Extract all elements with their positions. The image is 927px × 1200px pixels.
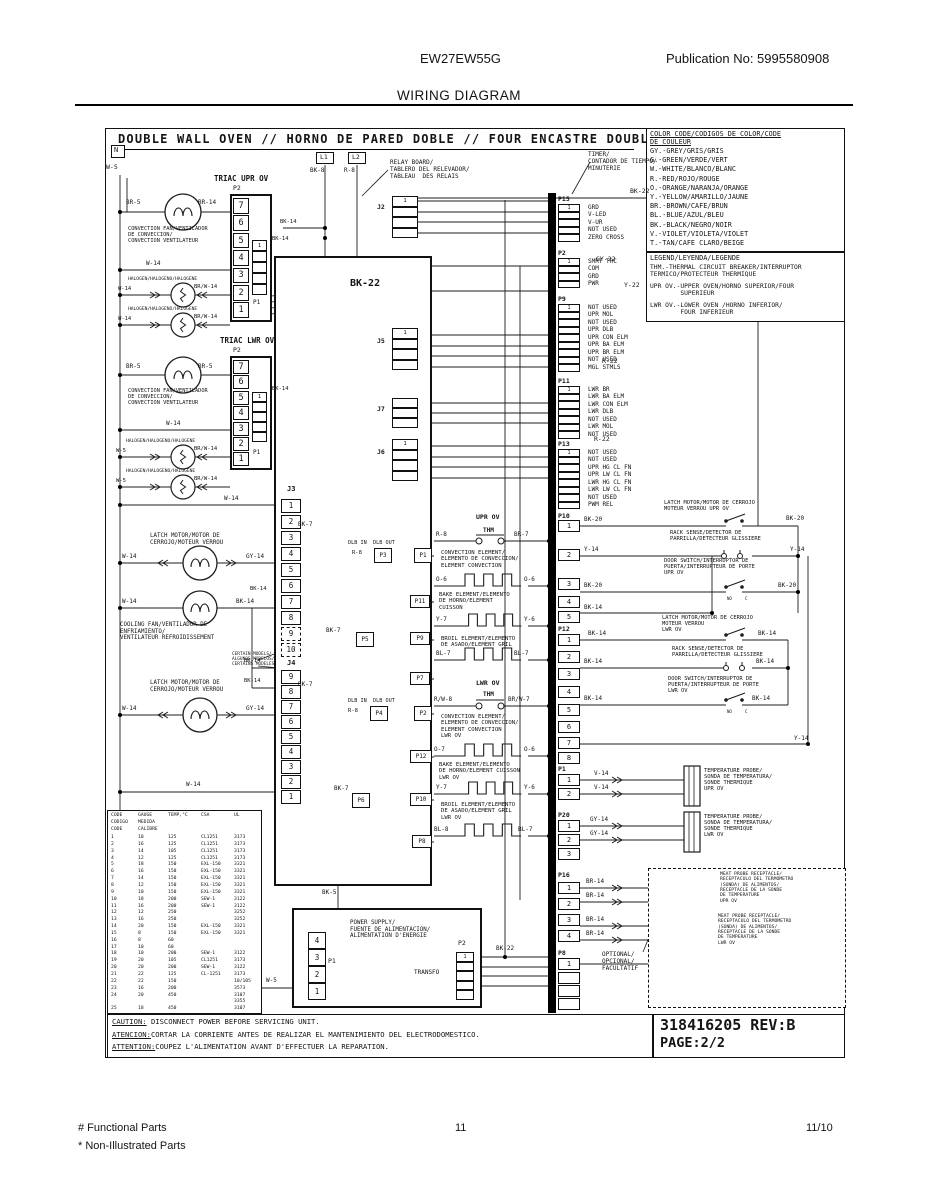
wire-gauge-cell: 105 <box>168 958 201 963</box>
wire-gauge-cell: 22 <box>138 972 168 977</box>
connector-label: P2 <box>233 347 241 354</box>
color-code-entry: GY.-GREY/GRIS/GRIS <box>650 148 724 156</box>
wire-label: BL-7 <box>514 651 528 658</box>
element-label: BROIL ELEMENT/ELEMENTO DE ASADO/ELEMENT … <box>441 636 515 649</box>
wire-label: BK-14 <box>756 659 774 666</box>
wire-label: Y-7 <box>436 785 447 792</box>
component-label: DOOR SWITCH/INTERRUPTOR DE PUERTA/INTERR… <box>668 676 759 694</box>
wire-gauge-cell: 250 <box>168 917 201 922</box>
timer-pin: 3 <box>558 668 580 680</box>
wire-gauge-cell: EXL-150 <box>201 924 234 929</box>
power-p2-pin <box>456 971 474 981</box>
color-code-entry: T.-TAN/CAFE CLARO/BEIGE <box>650 240 744 248</box>
relay-port-p3: P3 <box>374 548 392 563</box>
wire-gauge-cell: 450 <box>168 1006 201 1011</box>
wire-gauge-cell <box>201 1006 234 1011</box>
timer-connector-label: P9 <box>558 296 566 303</box>
wire-gauge-cell <box>201 917 234 922</box>
timer-pin: 2 <box>558 898 580 910</box>
j2-pin: 1 <box>392 196 418 207</box>
wire-gauge-row: 1920105CL12513173 <box>111 958 258 963</box>
power-p2-pin <box>456 981 474 991</box>
section-label: LWR OV <box>476 680 499 687</box>
timer-pin: 6 <box>558 721 580 733</box>
wire-label: BR/W-14 <box>194 314 217 320</box>
wire-gauge-cell: CL1251 <box>201 849 234 854</box>
wire-gauge-cell: 150 <box>168 862 201 867</box>
wire-gauge-cell: 5 <box>111 862 138 867</box>
timer-pin <box>558 312 580 320</box>
caution-line: ATTENTION:COUPEZ L'ALIMENTATION AVANT D'… <box>112 1043 389 1051</box>
triac-lower-inner-pin <box>252 432 267 442</box>
triac-lower-pin: 7 <box>233 360 249 374</box>
timer-pin: 1 <box>558 449 580 457</box>
j3-pin: 9 <box>281 627 301 641</box>
timer-connector-label: P20 <box>558 812 570 819</box>
page-indicator: PAGE:2/2 <box>660 1036 725 1051</box>
triac-upper-pin: 6 <box>233 215 249 231</box>
wire-gauge-cell: 12 <box>111 910 138 915</box>
timer-pin: 2 <box>558 549 580 561</box>
wire-gauge-cell: 24 <box>111 993 138 998</box>
timer-pin <box>558 464 580 472</box>
connector-label: J5 <box>377 338 385 345</box>
wire-label: W-14 <box>166 421 180 428</box>
wire-gauge-row: 216125CL12513173 <box>111 842 258 847</box>
wire-gauge-cell: 3252 <box>234 917 258 922</box>
footer-non-illustrated-parts: * Non-Illustrated Parts <box>78 1140 186 1153</box>
triac-lower-inner-pin <box>252 412 267 422</box>
wire-gauge-cell: 3573 <box>234 986 258 991</box>
timer-pin <box>558 364 580 372</box>
wire-gauge-cell: MEDIDA <box>138 820 168 825</box>
wire-gauge-cell: 3321 <box>234 931 258 936</box>
wire-gauge-cell: UL <box>234 813 258 818</box>
timer-pin: 7 <box>558 737 580 749</box>
wire-gauge-cell: 10 <box>111 897 138 902</box>
power-p2-pin: 1 <box>456 952 474 962</box>
wire-label: O-6 <box>436 577 447 584</box>
wire-gauge-cell: 150 <box>168 924 201 929</box>
wire-label: BK-14 <box>280 219 297 225</box>
wire-gauge-cell: 23 <box>111 986 138 991</box>
j4-pin: 5 <box>281 730 301 744</box>
wire-label: BK-14 <box>584 659 602 666</box>
wire-label: W-14 <box>146 261 160 268</box>
legend-entry: UPR OV.-UPPER OVEN/HORNO SUPERIOR/FOUR S… <box>650 283 794 297</box>
timer-pin: 1 <box>558 958 580 970</box>
footer-page-number: 11 <box>455 1122 466 1135</box>
wire-gauge-cell: 150 <box>168 883 201 888</box>
wire-gauge-cell: 10 <box>138 890 168 895</box>
wire-label: BK-14 <box>236 599 254 606</box>
timer-pin: 1 <box>558 204 580 212</box>
wire-label: W-5 <box>116 478 126 484</box>
wire-gauge-cell <box>234 945 258 950</box>
wire-label: GY-14 <box>246 706 264 713</box>
timer-pin <box>558 494 580 502</box>
wire-gauge-cell <box>201 910 234 915</box>
component-label: CONVECTION FAN/VENTILADOR DE CONVECCION/… <box>128 388 208 406</box>
wire-gauge-cell: 3252 <box>234 910 258 915</box>
wire-label: Y-22 <box>624 282 640 289</box>
wire-gauge-cell: 21 <box>111 972 138 977</box>
timer-pin <box>558 424 580 432</box>
wire-label: GY-14 <box>246 554 264 561</box>
triac-lower-inner-pin: 1 <box>252 392 267 402</box>
timer-connector-label: P8 <box>558 950 566 957</box>
color-code-entry: R.-RED/ROJO/ROUGE <box>650 176 720 184</box>
j4-pin: 7 <box>281 700 301 714</box>
wire-gauge-row: 158150EXL-1503321 <box>111 931 258 936</box>
wire-gauge-cell: GAUGE <box>138 813 168 818</box>
power-p1-pin: 3 <box>308 949 326 966</box>
connector-label: P1 <box>253 300 260 307</box>
wire-gauge-cell: 10 <box>138 945 168 950</box>
wire-gauge-cell: 8 <box>138 938 168 943</box>
wire-gauge-cell: 10/105 <box>234 979 258 984</box>
j3-pin: 3 <box>281 531 301 545</box>
wire-label: GY-14 <box>590 831 608 838</box>
triac-lower-pin: 1 <box>233 452 249 466</box>
power-p1-pin: 4 <box>308 932 326 949</box>
wire-label: V-14 <box>594 785 608 792</box>
timer-pin <box>558 266 580 274</box>
triac-lower-pin: 4 <box>233 406 249 420</box>
wire-label: BK-14 <box>244 658 261 664</box>
relay-port-p1: P1 <box>414 548 432 563</box>
j3-pin: 8 <box>281 611 301 625</box>
wire-gauge-cell: 125 <box>168 856 201 861</box>
page-title: WIRING DIAGRAM <box>397 88 521 103</box>
j5-pin <box>392 339 418 350</box>
timer-pin <box>558 985 580 997</box>
wire-label: O-7 <box>434 747 445 754</box>
timer-signal: NOT USED <box>588 227 617 234</box>
timer-pin: 1 <box>558 634 580 646</box>
wire-gauge-cell <box>111 999 138 1004</box>
wire-gauge-cell: 18 <box>138 1006 168 1011</box>
wire-gauge-cell: CODE <box>111 827 138 832</box>
wiring-diagram-page: EW27EW55G Publication No: 5995580908 WIR… <box>0 0 927 1200</box>
wire-gauge-row: 222215010/105 <box>111 979 258 984</box>
triac-lower-pin: 3 <box>233 422 249 436</box>
j2-pin <box>392 228 418 239</box>
wire-gauge-cell: 16 <box>138 917 168 922</box>
wire-label: BK-14 <box>758 631 776 638</box>
wire-gauge-cell: 200 <box>168 951 201 956</box>
wire-gauge-cell: 22 <box>138 979 168 984</box>
wire-gauge-cell: SEW-1 <box>201 951 234 956</box>
wire-label: BK-20 <box>584 583 602 590</box>
timer-signal: UPR DLB <box>588 327 613 334</box>
wire-gauge-cell <box>201 820 234 825</box>
j3-pin: 7 <box>281 595 301 609</box>
timer-pin: 1 <box>558 304 580 312</box>
wire-gauge-cell: 16 <box>111 938 138 943</box>
triac-lower-inner-pin <box>252 402 267 412</box>
j5-pin <box>392 349 418 360</box>
wire-gauge-cell: 4 <box>111 856 138 861</box>
wire-gauge-cell <box>201 993 234 998</box>
wire-gauge-cell: EXL-150 <box>201 890 234 895</box>
wire-label: BK-14 <box>272 386 289 392</box>
wire-gauge-cell: 125 <box>168 972 201 977</box>
wire-label: BR-7 <box>514 532 528 539</box>
thm-label: THM <box>483 528 494 535</box>
component-label: RACK SENSE/DETECTOR DE PARRILLA/DETECTEU… <box>672 646 763 658</box>
wire-gauge-cell: 18 <box>138 862 168 867</box>
timer-pin: 3 <box>558 848 580 860</box>
wire-gauge-cell: 150 <box>168 931 201 936</box>
relay-port-p4: P4 <box>370 706 388 721</box>
j4-pin: 3 <box>281 760 301 774</box>
color-code-entry: G.-GREEN/VERDE/VERT <box>650 157 728 165</box>
wire-gauge-cell: 3122 <box>234 951 258 956</box>
timer-label: TIMER/ CONTADOR DE TIEMPO/ MINUTERIE <box>588 152 657 172</box>
wire-label: BK-22 <box>630 188 650 195</box>
wire-gauge-cell: 10 <box>138 951 168 956</box>
timer-connector-label: P12 <box>558 626 570 633</box>
timer-connector-label: P15 <box>558 196 570 203</box>
wire-label: BK-14 <box>584 605 602 612</box>
j3-pin: 4 <box>281 547 301 561</box>
j7-pin <box>392 408 418 418</box>
color-code-entry: W.-WHITE/BLANCO/BLANC <box>650 166 736 174</box>
component-label: HALOGEN/HALOGENO/HALOGENE <box>128 277 197 282</box>
wire-label: Y-6 <box>524 785 535 792</box>
triac-upper-pin: 1 <box>233 302 249 318</box>
component-label: TEMPERATURE PROBE/ SONDA DE TEMPERATURA/… <box>704 814 772 839</box>
wire-label: W-5 <box>106 164 118 171</box>
timer-pin: 1 <box>558 258 580 266</box>
wire-gauge-row: 910150EXL-1503321 <box>111 890 258 895</box>
footer-date: 11/10 <box>806 1122 833 1135</box>
wire-gauge-cell: 20 <box>138 924 168 929</box>
wire-gauge-cell: 15 <box>111 931 138 936</box>
relay-port-p2: P2 <box>414 706 432 721</box>
timer-pin <box>558 319 580 327</box>
wire-gauge-cell: 14 <box>138 876 168 881</box>
wire-label: BR-5 <box>126 200 140 207</box>
wire-gauge-cell: EXL-150 <box>201 862 234 867</box>
wire-gauge-cell: 3321 <box>234 890 258 895</box>
wire-gauge-row: 3355 <box>111 999 258 1004</box>
wire-gauge-row: 1420150EXL-1503321 <box>111 924 258 929</box>
wire-gauge-cell: 11 <box>111 904 138 909</box>
part-number: 318416205 REV:B <box>660 1017 795 1034</box>
timer-pin <box>558 281 580 289</box>
wire-label: Y-6 <box>524 617 535 624</box>
wire-gauge-cell <box>234 827 258 832</box>
caution-keyword: CAUTION: <box>112 1017 147 1026</box>
wire-gauge-cell: 3173 <box>234 856 258 861</box>
wire-gauge-cell: 200 <box>168 904 201 909</box>
wire-gauge-row: 412125CL12513173 <box>111 856 258 861</box>
wire-gauge-cell: CL1251 <box>201 856 234 861</box>
wire-gauge-cell: 3173 <box>234 835 258 840</box>
wire-gauge-cell: 6 <box>111 869 138 874</box>
wire-gauge-cell: 60 <box>168 938 201 943</box>
j6-pin <box>392 460 418 471</box>
color-code-title: COLOR CODE/CODIGOS DE COLOR/CODE DE COUL… <box>650 131 781 146</box>
caution-text: COUPEZ L'ALIMENTATION AVANT D'EFFECTUER … <box>155 1042 389 1051</box>
wire-label: BR-14 <box>586 931 604 938</box>
triac-lower-pin: 6 <box>233 375 249 389</box>
connector-label: J2 <box>377 204 385 211</box>
timer-pin: 8 <box>558 752 580 764</box>
wire-label: W-14 <box>118 316 131 322</box>
wire-label: BK-14 <box>244 678 261 684</box>
wire-gauge-cell: 22 <box>111 979 138 984</box>
wire-gauge-cell: 3321 <box>234 883 258 888</box>
wire-gauge-cell: 13 <box>111 917 138 922</box>
wire-gauge-row: 171060 <box>111 945 258 950</box>
connector-label: J3 <box>287 486 295 494</box>
j7-pin <box>392 398 418 408</box>
wire-gauge-cell: 18 <box>138 835 168 840</box>
timer-pin: 1 <box>558 386 580 394</box>
wire-gauge-cell: 3 <box>111 849 138 854</box>
wire-label: Y-14 <box>794 736 808 743</box>
triac-upper-inner-pin <box>252 284 267 295</box>
wire-gauge-cell: 3321 <box>234 876 258 881</box>
wire-label: BR-14 <box>586 893 604 900</box>
connector-label: P1 <box>328 958 336 965</box>
power-supply-label: POWER SUPPLY/ FUENTE DE ALIMENTACION/ AL… <box>350 920 430 940</box>
wire-gauge-cell <box>138 999 168 1004</box>
wire-gauge-cell: 16 <box>138 986 168 991</box>
wire-gauge-cell: 3107 <box>234 993 258 998</box>
wire-label: W-14 <box>118 286 131 292</box>
wire-gauge-cell: SEW-1 <box>201 904 234 909</box>
timer-signal: ZERO CROSS <box>588 235 624 242</box>
j2-pin <box>392 217 418 228</box>
wire-gauge-cell: EXL-150 <box>201 883 234 888</box>
wire-label: W-14 <box>122 554 136 561</box>
triac-upper-pin: 2 <box>233 285 249 301</box>
element-label: BROIL ELEMENT/ELEMENTO DE ASADO/ELEMENT … <box>441 802 515 821</box>
timer-pin: 4 <box>558 686 580 698</box>
wire-gauge-row: 13162503252 <box>111 917 258 922</box>
wire-gauge-row: 25184503107 <box>111 1006 258 1011</box>
wire-label: BL-7 <box>518 827 532 834</box>
caution-keyword: ATENCION: <box>112 1030 151 1039</box>
wire-gauge-cell <box>201 945 234 950</box>
wire-gauge-row: 1018200SEW-13122 <box>111 897 258 902</box>
element-label: BAKE ELEMENT/ELEMENTO DE HORNO/ELEMENT C… <box>439 592 510 611</box>
wire-gauge-cell: 9 <box>111 890 138 895</box>
wire-gauge-cell: 200 <box>168 897 201 902</box>
wire-gauge-row: 23162003573 <box>111 986 258 991</box>
timer-signal: LWR MOL <box>588 424 613 431</box>
wire-gauge-cell <box>201 979 234 984</box>
wire-gauge-cell: 16 <box>138 904 168 909</box>
timer-pin <box>558 479 580 487</box>
wire-gauge-cell: CSA <box>201 813 234 818</box>
component-label: HALOGEN/HALOGENO/HALOGENE <box>126 469 195 474</box>
wire-gauge-cell <box>234 938 258 943</box>
wire-label: BK-22 <box>496 946 514 953</box>
wire-gauge-cell: SEW-1 <box>201 965 234 970</box>
j4-pin: 6 <box>281 715 301 729</box>
wire-gauge-cell: 3173 <box>234 972 258 977</box>
wire-gauge-row: 2020200SEW-13122 <box>111 965 258 970</box>
wire-gauge-cell: 12 <box>138 883 168 888</box>
j4-pin: 4 <box>281 745 301 759</box>
triac-lower-pin: 2 <box>233 437 249 451</box>
wire-label: BK-20 <box>584 517 602 524</box>
triac-upper-title: TRIAC UPR OV <box>214 175 268 184</box>
triac-upper-inner-pin <box>252 251 267 262</box>
section-label: UPR OV <box>476 514 499 521</box>
timer-pin: 4 <box>558 596 580 608</box>
j5-pin: 1 <box>392 328 418 339</box>
timer-signal: LWR BA ELM <box>588 394 624 401</box>
timer-pin <box>558 409 580 417</box>
wire-gauge-row: 518150EXL-1503321 <box>111 862 258 867</box>
timer-connector-label: P2 <box>558 250 566 257</box>
wire-gauge-cell <box>234 820 258 825</box>
connector-label: J6 <box>377 449 385 456</box>
wire-gauge-row: 812150EXL-1503321 <box>111 883 258 888</box>
triac-lower-pin: 5 <box>233 391 249 405</box>
wire-gauge-cell: CODE <box>111 813 138 818</box>
j2-pin <box>392 207 418 218</box>
wire-label: BK-14 <box>588 631 606 638</box>
wire-gauge-cell: 18 <box>138 897 168 902</box>
wire-gauge-row: 714150EXL-1503321 <box>111 876 258 881</box>
wire-gauge-cell: 17 <box>111 945 138 950</box>
timer-pin: 1 <box>558 820 580 832</box>
timer-pin <box>558 273 580 281</box>
timer-pin <box>558 357 580 365</box>
wire-label: Y-7 <box>436 617 447 624</box>
timer-pin: 1 <box>558 520 580 532</box>
j3-pin: 5 <box>281 563 301 577</box>
wire-gauge-cell: 150 <box>168 979 201 984</box>
caution-text: CORTAR LA CORRIENTE ANTES DE REALIZAR EL… <box>151 1030 480 1039</box>
timer-pin: 2 <box>558 788 580 800</box>
wire-label: GY-14 <box>590 817 608 824</box>
timer-pin <box>558 219 580 227</box>
wire-gauge-row: 24204503107 <box>111 993 258 998</box>
triac-lower-inner-pin <box>252 422 267 432</box>
caution-keyword: ATTENTION: <box>112 1042 155 1051</box>
component-label: RACK SENSE/DETECTOR DE PARRILLA/DETECTEU… <box>670 530 761 542</box>
wire-label: BK-8 <box>310 168 324 175</box>
legend-entry: THM.-THERMAL CIRCUIT BREAKER/INTERRUPTOR… <box>650 264 802 278</box>
wire-gauge-row: 616150EXL-1503321 <box>111 869 258 874</box>
wire-label: R-8 <box>352 550 362 556</box>
wire-gauge-cell: 3107 <box>234 1006 258 1011</box>
wire-gauge-cell: 19 <box>111 958 138 963</box>
caution-line: ATENCION:CORTAR LA CORRIENTE ANTES DE RE… <box>112 1031 480 1039</box>
wire-label: BK-14 <box>752 696 770 703</box>
relay-port-p10: P10 <box>410 793 432 806</box>
wire-label: BR/W-7 <box>508 697 530 704</box>
timer-signal: COM <box>588 266 599 273</box>
wire-gauge-cell: CALIBRE <box>138 827 168 832</box>
component-label: OPTIONAL/ OPCIONAL/ FACULTATIF <box>602 952 638 972</box>
j5-pin <box>392 360 418 371</box>
timer-signal: PWR <box>588 281 599 288</box>
wire-gauge-cell <box>168 827 201 832</box>
timer-pin <box>558 401 580 409</box>
wire-gauge-cell: 3321 <box>234 862 258 867</box>
wire-gauge-cell: CL1251 <box>201 842 234 847</box>
component-label: HALOGEN/HALOGENO/HALOGENE <box>128 307 197 312</box>
